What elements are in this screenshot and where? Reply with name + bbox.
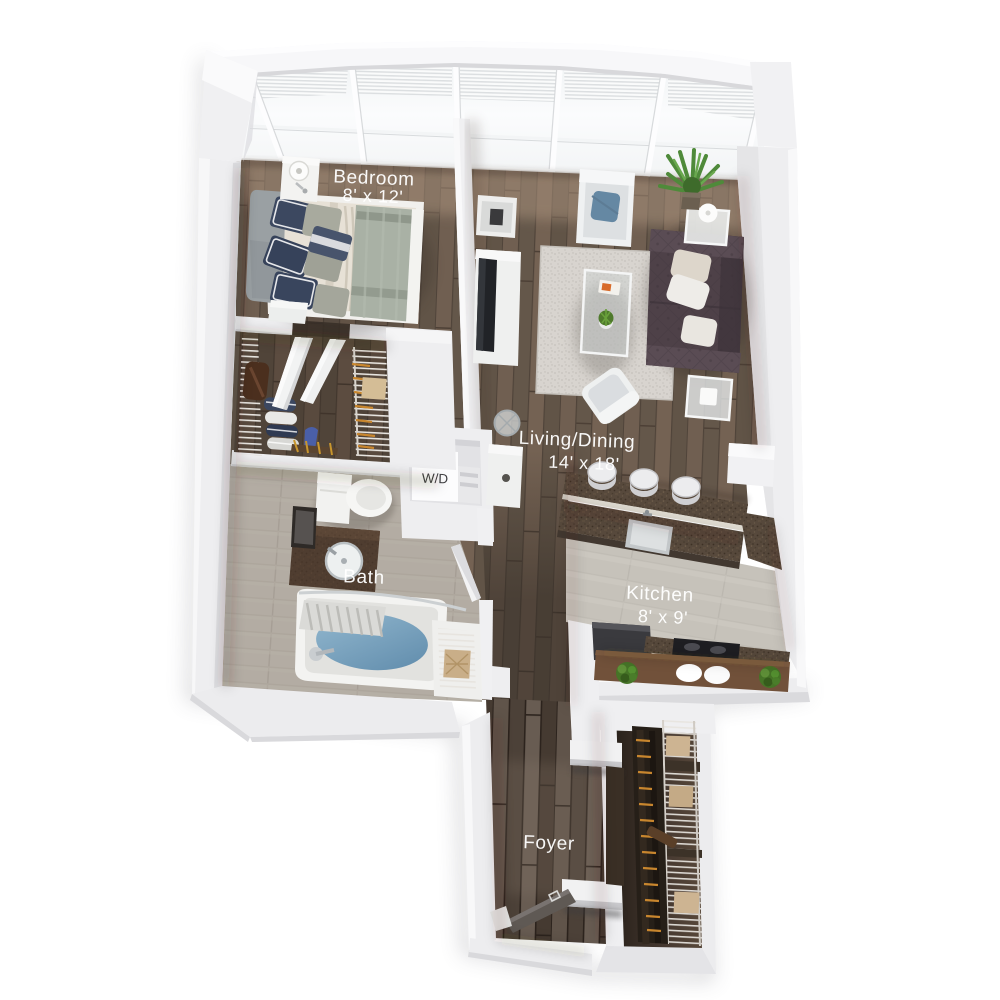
svg-text:Kitchen: Kitchen xyxy=(626,583,694,607)
svg-text:8' x 12': 8' x 12' xyxy=(342,185,403,207)
svg-text:Bath: Bath xyxy=(343,566,385,588)
svg-text:8' x 9': 8' x 9' xyxy=(638,606,689,628)
svg-text:Living/Dining: Living/Dining xyxy=(518,428,635,453)
svg-text:Foyer: Foyer xyxy=(523,832,575,855)
svg-text:14' x 18': 14' x 18' xyxy=(548,452,620,475)
